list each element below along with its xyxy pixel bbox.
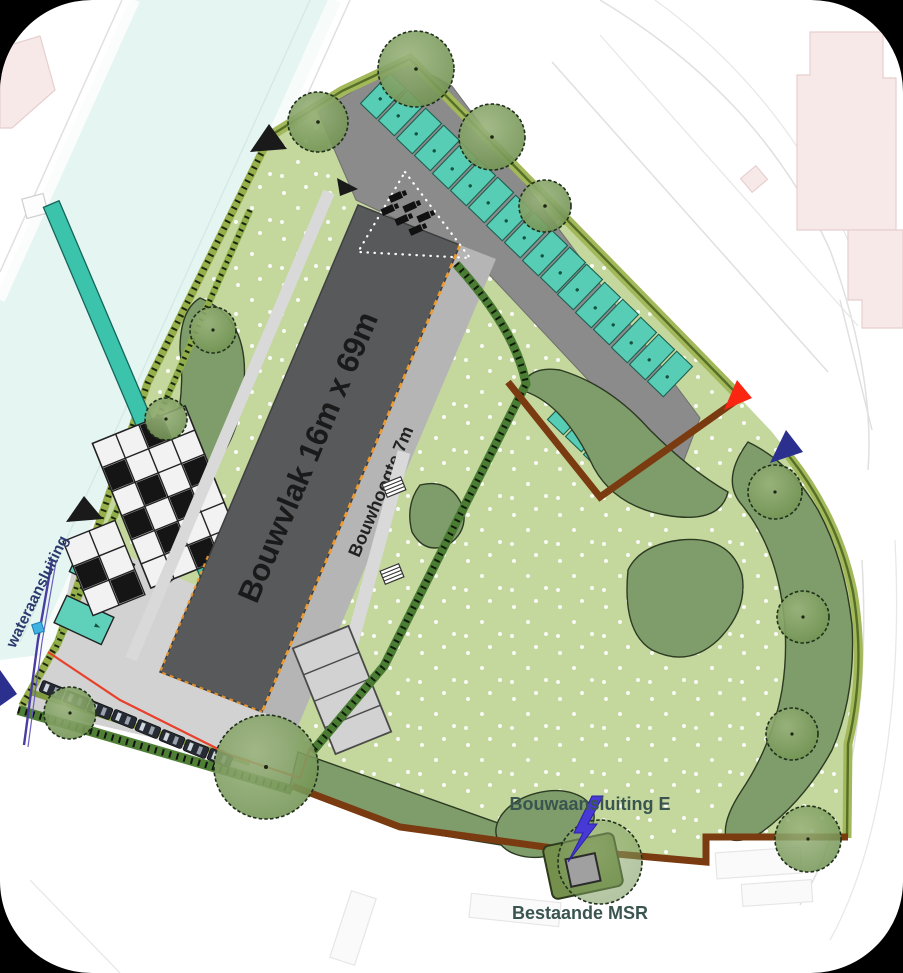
- tree-icon: [748, 465, 802, 519]
- site-plan-canvas: Bouwvlak 16m x 69m Bouwhoogte 7m: [0, 0, 903, 973]
- background-building: [0, 36, 55, 128]
- tree-icon: [519, 180, 571, 232]
- tree-icon: [378, 31, 454, 107]
- tree-icon: [190, 307, 236, 353]
- power-connection-label: Bouwaansluiting E: [509, 794, 670, 814]
- background-parcel: [741, 880, 812, 907]
- tree-icon: [145, 398, 187, 440]
- tree-icon: [288, 92, 348, 152]
- background-building: [797, 32, 896, 230]
- existing-msr-label: Bestaande MSR: [512, 903, 648, 923]
- background-parcel: [330, 891, 376, 966]
- tree-icon: [459, 104, 525, 170]
- background-building: [848, 230, 903, 328]
- background-building-small: [741, 166, 768, 193]
- tree-icon: [777, 591, 829, 643]
- tree-icon: [214, 715, 318, 819]
- tree-icon: [775, 806, 841, 872]
- tree-icon: [766, 708, 818, 760]
- navy-triangle-marker-icon: [0, 670, 17, 706]
- background-road-line: [30, 880, 120, 973]
- tree-icon: [44, 687, 96, 739]
